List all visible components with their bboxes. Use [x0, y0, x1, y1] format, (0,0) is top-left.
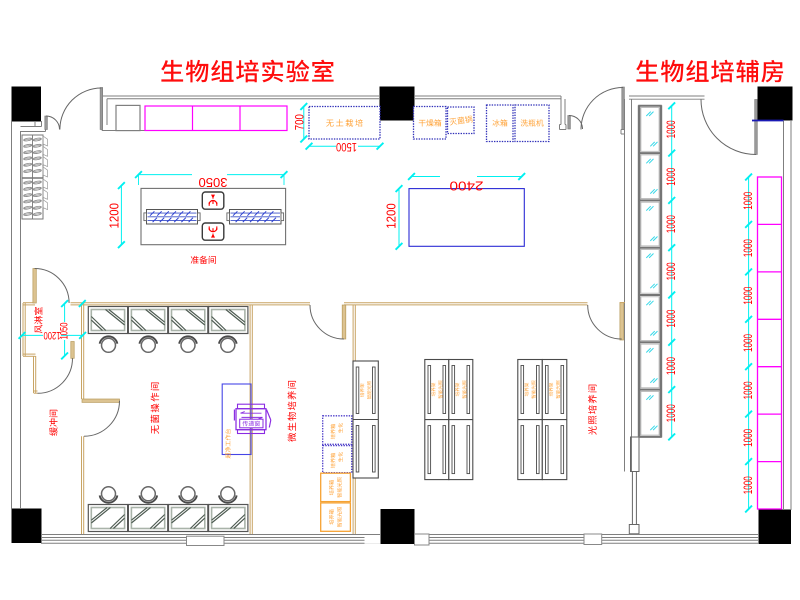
- svg-text:1000: 1000: [741, 286, 755, 304]
- svg-text:1000: 1000: [664, 357, 678, 375]
- svg-text:1000: 1000: [741, 429, 755, 447]
- svg-text:1000: 1000: [664, 309, 678, 327]
- svg-text:3050: 3050: [198, 175, 227, 189]
- svg-text:1000: 1000: [741, 381, 755, 399]
- svg-text:700: 700: [293, 114, 307, 130]
- svg-text:1000: 1000: [741, 476, 755, 494]
- svg-text:1000: 1000: [664, 404, 678, 422]
- svg-text:1000: 1000: [741, 239, 755, 257]
- svg-text:1000: 1000: [741, 191, 755, 209]
- svg-text:1200: 1200: [107, 203, 121, 229]
- svg-text:1200: 1200: [384, 203, 398, 229]
- svg-text:2400: 2400: [449, 179, 483, 193]
- svg-text:1000: 1000: [664, 120, 678, 138]
- svg-text:1000: 1000: [741, 334, 755, 352]
- svg-text:1000: 1000: [664, 262, 678, 280]
- svg-text:1000: 1000: [664, 168, 678, 186]
- svg-text:1500: 1500: [336, 140, 357, 154]
- svg-text:1050: 1050: [59, 323, 71, 340]
- svg-text:1000: 1000: [664, 215, 678, 233]
